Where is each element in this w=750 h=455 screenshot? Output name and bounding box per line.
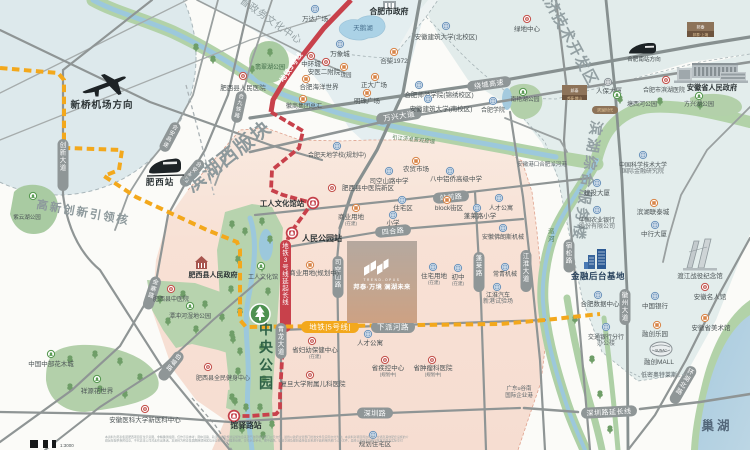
svg-text:珑园: 珑园 [340, 71, 352, 79]
svg-text:TREND-OPUS: TREND-OPUS [363, 278, 400, 282]
svg-text:办公楼: 办公楼 [597, 339, 615, 347]
svg-text:金融后台基地: 金融后台基地 [570, 271, 625, 281]
svg-text:明珠广场: 明珠广场 [354, 96, 381, 105]
svg-text:商业用地: 商业用地 [338, 212, 365, 221]
svg-text:人才公寓: 人才公寓 [357, 338, 383, 347]
svg-text:邦泰·麓山: 邦泰·麓山 [567, 96, 582, 101]
svg-text:(在建): (在建) [309, 353, 321, 360]
svg-text:邦泰·万境 澜湖未来: 邦泰·万境 澜湖未来 [353, 283, 411, 291]
svg-text:江淮大道: 江淮大道 [523, 252, 530, 283]
svg-text:(规划中): (规划中) [380, 371, 397, 378]
svg-text:安徽佛朗斯机械: 安徽佛朗斯机械 [482, 233, 524, 241]
svg-text:国际企业港: 国际企业港 [505, 391, 533, 399]
svg-text:国际金融研究院: 国际金融研究院 [622, 167, 664, 175]
svg-text:地铁|5号线|: 地铁|5号线| [309, 322, 351, 332]
svg-text:合柴1972: 合柴1972 [380, 56, 408, 65]
svg-text:翡翠湖公园: 翡翠湖公园 [255, 63, 285, 71]
svg-text:合肥数据中心: 合肥数据中心 [581, 299, 621, 308]
svg-text:新桥机场方向: 新桥机场方向 [70, 99, 133, 111]
svg-text:方兴湖公园: 方兴湖公园 [684, 100, 714, 108]
svg-text:绿地中心: 绿地中心 [514, 24, 541, 33]
svg-text:(在建): (在建) [452, 280, 464, 287]
svg-text:住宅区: 住宅区 [393, 203, 413, 212]
svg-text:合肥市滨湖医院: 合肥市滨湖医院 [643, 86, 685, 94]
svg-text:邦泰: 邦泰 [571, 87, 579, 93]
svg-text:滨湖时代: 滨湖时代 [597, 107, 613, 113]
svg-text:安徽名人馆: 安徽名人馆 [694, 292, 727, 301]
svg-text:融创MALL: 融创MALL [644, 357, 674, 366]
svg-text:初中: 初中 [452, 272, 465, 281]
svg-text:中国农业银行: 中国农业银行 [579, 216, 615, 224]
svg-text:block街区: block街区 [435, 203, 464, 212]
svg-text:创新大道: 创新大道 [60, 140, 67, 172]
svg-text:小学: 小学 [387, 218, 401, 227]
svg-text:派河: 派河 [548, 228, 555, 243]
svg-text:合肥海洋世界: 合肥海洋世界 [300, 82, 340, 91]
svg-text:潭冲河湿地公园: 潭冲河湿地公园 [169, 312, 211, 320]
svg-text:新港试验场: 新港试验场 [483, 297, 513, 305]
svg-text:肥西站: 肥西站 [146, 177, 175, 187]
svg-text:合肥市政府: 合肥市政府 [369, 6, 409, 16]
svg-text:SUNAC: SUNAC [655, 349, 667, 353]
svg-text:中行大厦: 中行大厦 [641, 229, 668, 238]
svg-text:蓬莱路: 蓬莱路 [476, 253, 483, 277]
svg-text:徽商集团总汇: 徽商集团总汇 [286, 102, 322, 110]
svg-text:肥西县全民健身中心: 肥西县全民健身中心 [196, 374, 250, 382]
svg-text:省疾控中心: 省疾控中心 [372, 363, 405, 372]
svg-text:邦泰·上境: 邦泰·上境 [693, 32, 709, 37]
svg-text:省妇幼保健中心: 省妇幼保健中心 [292, 345, 338, 354]
svg-text:天鹅湖: 天鹅湖 [353, 23, 373, 32]
svg-text:工人文化馆: 工人文化馆 [248, 273, 278, 281]
svg-text:安徽医科大学新医科中心: 安徽医科大学新医科中心 [109, 415, 181, 424]
svg-text:工人文化馆站: 工人文化馆站 [260, 199, 305, 208]
svg-text:渡江战役纪念馆: 渡江战役纪念馆 [677, 271, 723, 280]
svg-text:万达广场: 万达广场 [302, 14, 329, 23]
svg-text:塘西河公园: 塘西河公园 [627, 100, 657, 108]
svg-text:合肥学院: 合肥学院 [481, 106, 505, 114]
svg-text:肥西县人民医院: 肥西县人民医院 [220, 83, 266, 92]
svg-text:人才公寓: 人才公寓 [489, 204, 513, 212]
svg-text:合肥南站方向: 合肥南站方向 [627, 55, 661, 63]
svg-text:正大广场: 正大广场 [361, 80, 388, 89]
svg-text:(在建): (在建) [428, 279, 440, 286]
svg-text:中国银行: 中国银行 [642, 301, 669, 310]
svg-text:蓬莱路小学: 蓬莱路小学 [464, 211, 497, 220]
svg-text:肥西县人民政府: 肥西县人民政府 [188, 270, 238, 279]
svg-text:低密奥特莱斯: 低密奥特莱斯 [641, 371, 677, 379]
svg-text:下派河路: 下派河路 [377, 322, 409, 332]
svg-text:常青机械: 常青机械 [493, 270, 517, 278]
svg-text:安徽建筑大学(南校区): 安徽建筑大学(南校区) [410, 104, 473, 113]
svg-text:馆驿路站: 馆驿路站 [230, 420, 261, 430]
svg-text:宿松路: 宿松路 [566, 241, 573, 265]
svg-text:徽州大道: 徽州大道 [622, 290, 629, 322]
svg-text:商业用地(规划中): 商业用地(规划中) [289, 268, 339, 277]
svg-text:肥西县中医院: 肥西县中医院 [153, 295, 189, 303]
svg-text:中国中部花木城: 中国中部花木城 [28, 359, 74, 368]
svg-text:(规划中): (规划中) [425, 371, 442, 378]
svg-text:省肿瘤科医院: 省肿瘤科医院 [414, 363, 454, 372]
svg-text:南艳湖公园: 南艳湖公园 [511, 95, 540, 103]
svg-text:滨湖联泰城: 滨湖联泰城 [637, 207, 670, 216]
svg-text:巢湖: 巢湖 [700, 418, 732, 433]
svg-text:祥源花世界: 祥源花世界 [81, 386, 114, 395]
svg-text:建投大厦: 建投大厦 [584, 188, 611, 197]
svg-text:安徽建筑大学(北校区): 安徽建筑大学(北校区) [415, 32, 478, 41]
svg-text:中国科学技术大学: 中国科学技术大学 [619, 161, 667, 169]
svg-text:股份有限公司: 股份有限公司 [579, 222, 615, 230]
svg-text:住宅用地: 住宅用地 [421, 271, 448, 280]
svg-text:中环城: 中环城 [301, 59, 321, 68]
svg-text:合肥天地学校(规划中): 合肥天地学校(规划中) [308, 151, 366, 159]
svg-text:(在建): (在建) [345, 220, 357, 227]
svg-text:深圳路: 深圳路 [364, 409, 387, 418]
svg-text:交通银行分行: 交通银行分行 [588, 333, 624, 341]
svg-text:合肥师范学院(锦绣校区): 合肥师范学院(锦绣校区) [404, 90, 473, 99]
svg-text:复旦大学附属儿科医院: 复旦大学附属儿科医院 [281, 379, 347, 388]
svg-text:人民公园站: 人民公园站 [302, 233, 342, 243]
svg-text:安医二附院: 安医二附院 [308, 67, 341, 76]
svg-text:邦泰: 邦泰 [697, 24, 705, 30]
svg-text:绍旨在提供相关信息，不代表本公司对此作出承诺。本资料为邦泰集: 绍旨在提供相关信息，不代表本公司对此作出承诺。本资料为邦泰集团肥西项目区位示意图… [105, 438, 403, 443]
svg-text:紫云湖公园: 紫云湖公园 [13, 213, 41, 221]
svg-text:青龙大道: 青龙大道 [278, 324, 285, 356]
svg-text:广东u谷南: 广东u谷南 [506, 384, 532, 392]
svg-text:安徽港口合肥派河港: 安徽港口合肥派河港 [517, 160, 567, 168]
svg-text:融创乐园: 融创乐园 [642, 329, 668, 338]
svg-text:八中铝侨高级中学: 八中铝侨高级中学 [430, 174, 483, 183]
svg-text:安徽省人民政府: 安徽省人民政府 [687, 83, 737, 92]
svg-text:农贸市场: 农贸市场 [403, 164, 430, 173]
svg-text:安徽省美术馆: 安徽省美术馆 [692, 323, 732, 332]
svg-text:司空山路中学: 司空山路中学 [370, 176, 410, 185]
svg-text:肥西县中医院新区: 肥西县中医院新区 [342, 183, 395, 192]
svg-text:江淮汽车: 江淮汽车 [486, 291, 510, 299]
svg-text:1:3000: 1:3000 [60, 443, 74, 448]
svg-text:万象城: 万象城 [330, 49, 350, 58]
